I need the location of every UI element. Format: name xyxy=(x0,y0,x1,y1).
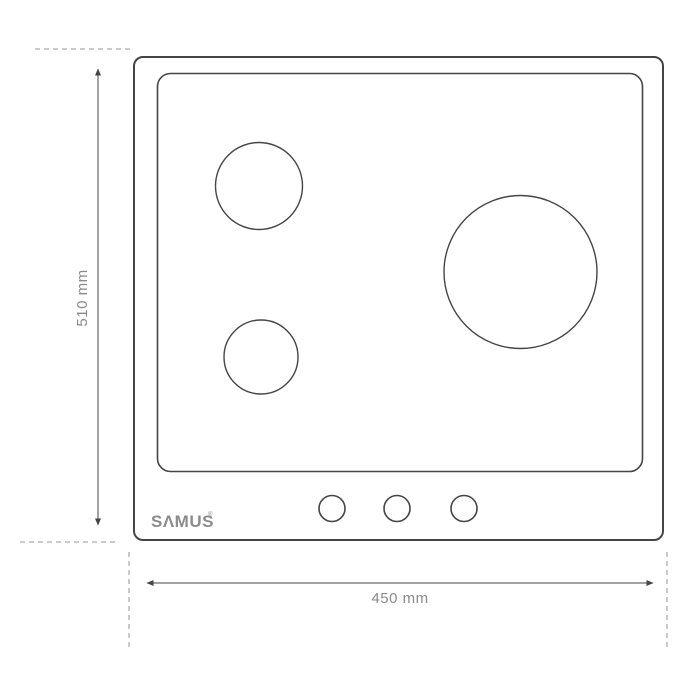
hob-dimension-diagram: SΛMUS ® 510 mm 450 mm xyxy=(0,0,700,700)
brand-logo: SΛMUS xyxy=(151,512,214,531)
hob-outer-body xyxy=(134,57,663,540)
hob-diagram-svg: SΛMUS ® 510 mm 450 mm xyxy=(0,0,700,700)
width-dimension-label: 450 mm xyxy=(371,590,428,607)
height-dimension-label: 510 mm xyxy=(74,269,91,326)
brand-registered-mark-icon: ® xyxy=(208,511,213,518)
